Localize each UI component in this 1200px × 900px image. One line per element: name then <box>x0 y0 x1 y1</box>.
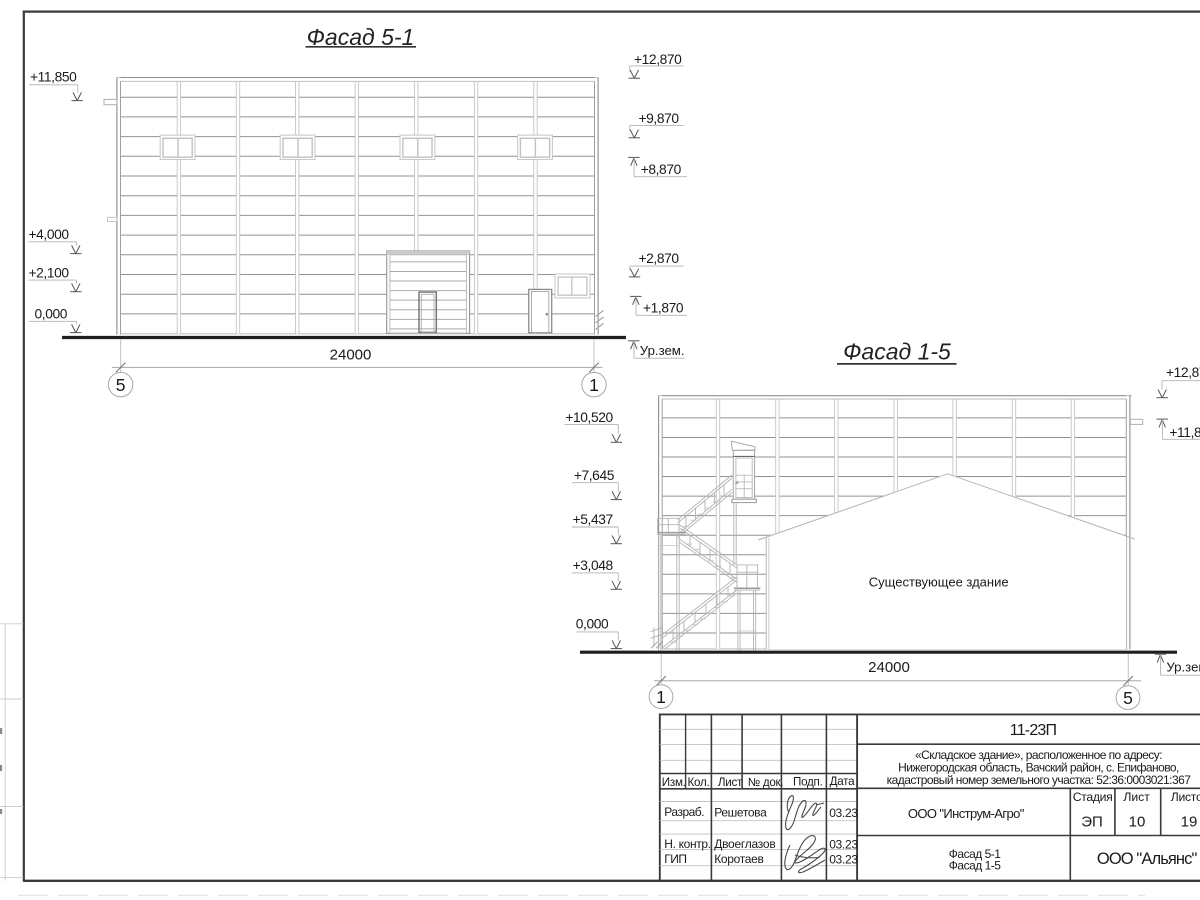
svg-text:ЭП: ЭП <box>1081 814 1103 831</box>
svg-text:+3,048: +3,048 <box>573 558 614 573</box>
svg-text:10: 10 <box>1129 814 1146 831</box>
svg-text:Дата: Дата <box>830 775 855 788</box>
svg-text:+11,850: +11,850 <box>30 70 77 85</box>
svg-text:№ док.: № док. <box>748 776 784 789</box>
svg-text:03.23: 03.23 <box>829 838 858 852</box>
svg-text:03.23: 03.23 <box>829 853 858 867</box>
svg-text:0,000: 0,000 <box>35 306 68 321</box>
svg-text:Изм.: Изм. <box>662 776 686 789</box>
svg-text:+4,000: +4,000 <box>29 227 70 242</box>
svg-text:1: 1 <box>589 375 599 395</box>
svg-text:+12,870: +12,870 <box>634 52 682 67</box>
svg-text:Решетова: Решетова <box>714 806 767 820</box>
svg-text:+8,870: +8,870 <box>641 162 682 177</box>
svg-text:Разраб.: Разраб. <box>664 805 704 819</box>
svg-text:Лист: Лист <box>1123 790 1150 804</box>
svg-text:19: 19 <box>1181 814 1198 831</box>
svg-text:Подп.: Подп. <box>793 776 823 789</box>
svg-text:Существующее здание: Существующее здание <box>869 574 1009 589</box>
svg-text:5: 5 <box>116 375 126 395</box>
svg-text:+5,437: +5,437 <box>573 512 613 527</box>
svg-text:Лист: Лист <box>718 776 743 789</box>
svg-text:Стадия: Стадия <box>1073 790 1113 804</box>
svg-text:0,000: 0,000 <box>576 617 609 632</box>
svg-text:+12,870: +12,870 <box>1166 365 1200 380</box>
svg-text:5: 5 <box>1123 688 1133 708</box>
svg-text:Фасад 1-5: Фасад 1-5 <box>843 338 951 364</box>
svg-text:Ур.зем.: Ур.зем. <box>640 343 685 358</box>
svg-text:1: 1 <box>656 687 666 707</box>
svg-text:+2,870: +2,870 <box>639 251 680 266</box>
svg-text:Фасад 1-5: Фасад 1-5 <box>949 858 1001 872</box>
svg-text:Кол.: Кол. <box>688 776 710 789</box>
svg-text:24000: 24000 <box>330 346 372 363</box>
svg-text:+10,520: +10,520 <box>565 410 613 425</box>
svg-text:ГИП: ГИП <box>664 852 686 866</box>
svg-text:03.23: 03.23 <box>829 806 858 820</box>
svg-text:+7,645: +7,645 <box>574 468 615 483</box>
svg-text:ООО "Инструм-Агро": ООО "Инструм-Агро" <box>908 806 1025 821</box>
svg-text:ООО "Альянс": ООО "Альянс" <box>1097 850 1198 868</box>
svg-text:кадастровый номер земельного у: кадастровый номер земельного участка: 52… <box>887 773 1192 787</box>
svg-text:24000: 24000 <box>868 659 910 676</box>
svg-text:Н. контр.: Н. контр. <box>664 837 710 851</box>
svg-text:+1,870: +1,870 <box>643 301 684 316</box>
svg-text:+9,870: +9,870 <box>639 111 680 126</box>
svg-text:Ур.зем: Ур.зем <box>1166 659 1200 674</box>
svg-text:+2,100: +2,100 <box>29 266 70 281</box>
svg-text:11-23П: 11-23П <box>1010 722 1057 739</box>
svg-text:Листов: Листов <box>1171 790 1200 804</box>
svg-text:Двоеглазов: Двоеглазов <box>714 837 775 851</box>
svg-text:Коротаев: Коротаев <box>714 852 763 866</box>
svg-text:+11,850: +11,850 <box>1169 425 1200 440</box>
